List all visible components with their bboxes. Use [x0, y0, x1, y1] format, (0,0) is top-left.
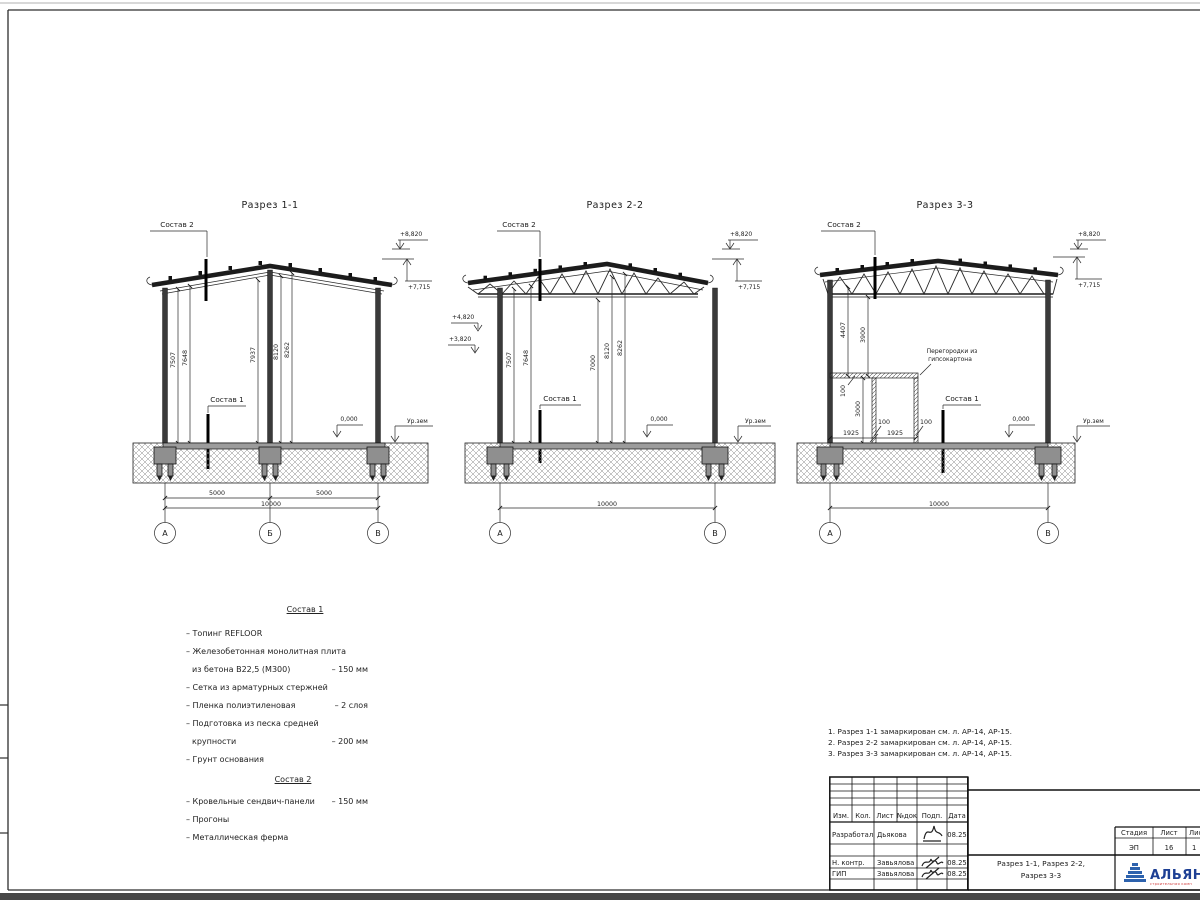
row-role: Разработал — [832, 831, 873, 839]
sostav1-label: Состав 1 — [543, 394, 577, 403]
elev-4820-value: +4,820 — [452, 314, 474, 321]
section-2-ground — [465, 443, 775, 483]
axis-b: Б — [267, 529, 273, 538]
sostav2-label: Состав 2 — [502, 220, 536, 229]
row-name: Завьялова — [877, 859, 914, 867]
elev-eave-value: +7,715 — [408, 284, 430, 291]
dim-5000-left: 5000 — [209, 490, 225, 497]
sheet-number: 16 — [1165, 844, 1174, 852]
section-3-title: Разрез 3-3 — [916, 200, 973, 211]
dim-1925-b: 1925 — [887, 430, 903, 437]
col-list: Лист — [876, 812, 893, 820]
dim-7648: 7648 — [523, 350, 530, 366]
dim-7507: 7507 — [170, 352, 177, 368]
section-3-bottom-dims: 10000 — [830, 483, 1048, 522]
dim-7648: 7648 — [182, 350, 189, 366]
dim-7000: 7000 — [590, 355, 597, 371]
materials-legend: Состав 1 – Топинг REFLOOR – Железобетонн… — [178, 601, 378, 847]
stage-label: Стадия — [1121, 829, 1147, 837]
sostav2-label: Состав 2 — [827, 220, 861, 229]
legend-item: – Железобетонная монолитная плита — [178, 643, 368, 661]
section-2-axis-bubbles: А В — [490, 523, 726, 544]
dim-8120: 8120 — [273, 344, 280, 360]
axis-a: А — [827, 529, 833, 538]
legend-item: – Подготовка из песка средней — [178, 715, 368, 733]
sostav2-label: Состав 2 — [160, 220, 194, 229]
section-3-elevation-marks: +8,820 +7,715 0,000 Ур.зем — [1005, 231, 1110, 442]
partition-label-line1: Перегородки из — [927, 348, 978, 355]
dim-5000-right: 5000 — [316, 490, 332, 497]
dim-4407: 4407 — [840, 322, 847, 338]
legend-item: – Сетка из арматурных стержней — [178, 679, 368, 697]
elev-eave-value: +7,715 — [738, 284, 760, 291]
section-2-sostav2-callout: Состав 2 — [497, 220, 540, 301]
dim-7937: 7937 — [250, 347, 257, 363]
dim-10000: 10000 — [597, 501, 617, 508]
section-2-drawing: Разрез 2-2 +4,820 +3,820 — [440, 195, 790, 565]
section-1-ground — [133, 443, 428, 483]
legend-item: крупности– 200 мм — [178, 733, 368, 751]
row-role: ГИП — [832, 870, 846, 878]
title-block-stage: Стадия Лист Лис ЭП 16 1 — [1121, 829, 1200, 852]
legend-item: – Металлическая ферма — [178, 829, 368, 847]
elev-ridge-value: +8,820 — [730, 231, 752, 238]
elev-zero-value: 0,000 — [340, 416, 357, 423]
section-1-vertical-dims: 7507 7648 7937 8120 8262 — [170, 273, 292, 443]
col-izm: Изм. — [833, 812, 849, 820]
col-kol: Кол. — [855, 812, 871, 820]
logo-text: АЛЬЯН — [1150, 868, 1200, 883]
legend-item: – Топинг REFLOOR — [178, 625, 368, 643]
sheets-total: 1 — [1192, 844, 1196, 852]
logo-pyramid-icon — [1124, 863, 1146, 882]
ground-level-label: Ур.зем — [407, 418, 428, 425]
row-date: 08.25 — [947, 870, 966, 878]
dim-10000: 10000 — [929, 501, 949, 508]
section-1-title: Разрез 1-1 — [241, 200, 298, 211]
row-name: Завьялова — [877, 870, 914, 878]
legend-item: – Пленка полиэтиленовая– 2 слоя — [178, 697, 368, 715]
elev-ridge-value: +8,820 — [1078, 231, 1100, 238]
legend-item: – Кровельные сендвич-панели– 150 мм — [178, 793, 368, 811]
legend-item: – Грунт основания — [178, 751, 368, 769]
section-1-sostav2-callout: Состав 2 — [150, 220, 207, 301]
elev-3820-value: +3,820 — [449, 336, 471, 343]
section-1-elevation-marks: +8,820 +7,715 0,000 Ур.зем — [333, 231, 433, 442]
section-3-roof-truss — [815, 259, 1063, 297]
ground-level-label: Ур.зем — [1083, 418, 1104, 425]
section-3-drawing: Разрез 3-3 4407 3900 Перегородки из гипс… — [795, 195, 1135, 565]
signature-scribble — [922, 857, 943, 868]
doc-title-line2: Разрез 3-3 — [1021, 871, 1062, 880]
title-block: Изм. Кол. Лист №док Подп. Дата Разработа… — [829, 776, 1200, 890]
dim-1925-a: 1925 — [843, 430, 859, 437]
ground-level-label: Ур.зем — [745, 418, 766, 425]
dim-3900: 3900 — [860, 327, 867, 343]
signature-scribble — [923, 826, 942, 841]
elev-zero-value: 0,000 — [1012, 416, 1029, 423]
title-block-headers: Изм. Кол. Лист №док Подп. Дата — [833, 812, 966, 820]
section-2-bottom-dims: 10000 — [500, 483, 715, 522]
dim-100-b: 100 — [920, 419, 932, 426]
elev-ridge-value: +8,820 — [400, 231, 422, 238]
dim-100-a: 100 — [878, 419, 890, 426]
title-block-rows: Разработал Дьякова 08.25 Н. контр. Завья… — [832, 826, 967, 879]
section-1-bottom-dims: 5000 5000 10000 — [165, 483, 378, 522]
title-block-doc-title: Разрез 1-1, Разрез 2-2, Разрез 3-3 — [997, 859, 1085, 880]
axis-c: В — [375, 529, 381, 538]
dim-8120: 8120 — [604, 343, 611, 359]
col-data: Дата — [948, 812, 966, 820]
company-logo: АЛЬЯН строительная комп — [1124, 863, 1200, 886]
sheets-label: Лис — [1189, 829, 1200, 837]
note-line: 2. Разрез 2-2 замаркирован см. л. АР-14,… — [828, 737, 1012, 748]
dim-8262: 8262 — [284, 342, 291, 358]
section-2-elevation-marks: +8,820 +7,715 0,000 Ур.зем — [643, 231, 771, 442]
dim-7507: 7507 — [506, 352, 513, 368]
elev-zero-value: 0,000 — [650, 416, 667, 423]
dim-100-top: 100 — [840, 385, 847, 397]
row-role: Н. контр. — [832, 859, 865, 867]
section-3-ground — [797, 443, 1075, 483]
axis-a: А — [162, 529, 168, 538]
sostav1-label: Состав 1 — [210, 395, 244, 404]
doc-title-line1: Разрез 1-1, Разрез 2-2, — [997, 859, 1085, 868]
signature-scribble — [922, 868, 943, 879]
row-name: Дьякова — [877, 831, 907, 839]
partition-label-line2: гипсокартона — [928, 356, 972, 363]
row-date: 08.25 — [947, 831, 966, 839]
col-podp: Подп. — [922, 812, 943, 820]
note-line: 1. Разрез 1-1 замаркирован см. л. АР-14,… — [828, 726, 1012, 737]
section-1-axis-bubbles: А Б В — [155, 523, 389, 544]
axis-a: А — [497, 529, 503, 538]
section-2-vertical-dims: 7507 7648 7000 8120 8262 — [506, 274, 625, 443]
logo-subtitle: строительная комп — [1150, 882, 1192, 886]
sheet-label: Лист — [1160, 829, 1177, 837]
drawing-notes: 1. Разрез 1-1 замаркирован см. л. АР-14,… — [828, 726, 1012, 759]
dim-10000: 10000 — [261, 501, 281, 508]
dim-3000: 3000 — [855, 401, 862, 417]
row-date: 08.25 — [947, 859, 966, 867]
section-2-title: Разрез 2-2 — [586, 200, 643, 211]
legend-item: – Прогоны — [178, 811, 368, 829]
section-3-vertical-dims: 4407 3900 — [840, 287, 868, 376]
legend-item: из бетона В22,5 (М300)– 150 мм — [178, 661, 368, 679]
stage-value: ЭП — [1129, 844, 1139, 852]
section-2-left-elevations: +4,820 +3,820 — [448, 314, 482, 353]
section-2-columns — [498, 288, 718, 443]
sostav1-label: Состав 1 — [945, 394, 979, 403]
dim-8262: 8262 — [617, 340, 624, 356]
sostav2-legend-title: Состав 2 — [178, 771, 378, 789]
sostav1-legend-title: Состав 1 — [178, 601, 378, 619]
axis-c: В — [1045, 529, 1051, 538]
axis-c: В — [712, 529, 718, 538]
note-line: 3. Разрез 3-3 замаркирован см. л. АР-14,… — [828, 748, 1012, 759]
section-3-axis-bubbles: А В — [820, 523, 1059, 544]
elev-eave-value: +7,715 — [1078, 282, 1100, 289]
col-ndok: №док — [896, 812, 917, 820]
section-1-drawing: Разрез 1-1 7507 7648 7937 8120 8262 Сост… — [130, 195, 460, 565]
